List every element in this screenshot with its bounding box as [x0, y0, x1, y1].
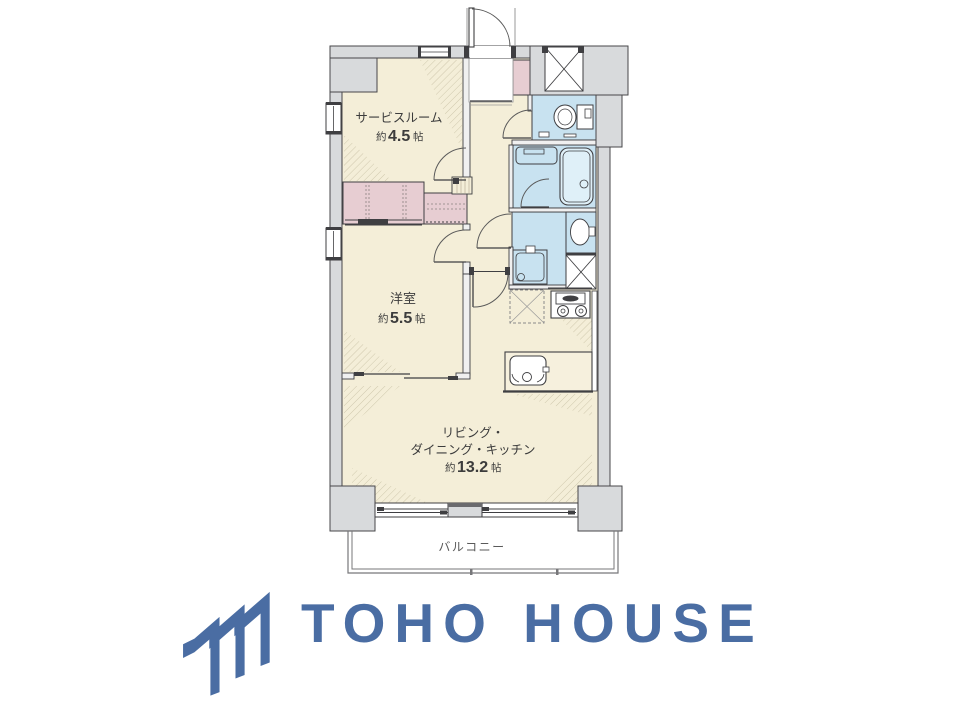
label-service-room: サービスルーム	[355, 111, 442, 125]
window-top	[418, 46, 451, 58]
window-left-upper	[326, 102, 341, 134]
toho-house-logo-icon	[183, 585, 280, 699]
entry-door-leaf	[469, 8, 474, 47]
elevator-shaft	[542, 46, 584, 91]
label-ldk-line1: リビング・	[442, 426, 505, 440]
column-top-left	[330, 58, 377, 92]
label-service-size-prefix: 約	[376, 130, 387, 143]
pipe-space	[566, 255, 596, 289]
wall-right-upper	[596, 95, 622, 147]
label-bedroom-size-prefix: 約	[378, 312, 389, 325]
label-ldk-size-prefix: 約	[445, 461, 456, 474]
column-bottom-right	[578, 486, 622, 531]
label-bedroom-size-value: 5.5	[390, 310, 412, 327]
label-bedroom: 洋室	[390, 291, 416, 306]
refrigerator-space	[510, 290, 544, 323]
gas-stove	[548, 288, 592, 318]
kitchen-wall-strip	[592, 291, 597, 391]
column-bottom-left	[330, 486, 375, 531]
kitchen-sink	[503, 352, 593, 392]
closet-small	[424, 193, 467, 224]
label-service-size-unit: 帖	[413, 130, 424, 143]
label-service-size-value: 4.5	[388, 128, 410, 145]
entry-door-arc	[472, 9, 510, 47]
floorplan-page: サービスルーム 約 4.5 帖 洋室 約 5.5 帖 リビング・ ダイニング・キ…	[0, 0, 960, 720]
label-bedroom-size-unit: 帖	[415, 312, 426, 325]
entry-door	[464, 8, 516, 58]
company-logo: TOHO HOUSE	[183, 584, 783, 704]
window-left-lower	[326, 227, 341, 260]
label-ldk-line2: ダイニング・キッチン	[410, 442, 535, 457]
shoe-cabinet	[513, 60, 530, 95]
balcony-sliding-window	[375, 503, 578, 517]
label-ldk-size-value: 13.2	[457, 459, 488, 476]
wall-right	[598, 147, 610, 505]
company-name: TOHO HOUSE	[301, 591, 764, 655]
bathtub-fixture	[560, 148, 593, 205]
closet-large	[343, 182, 424, 224]
label-balcony: バルコニー	[438, 540, 505, 554]
label-ldk-size-unit: 帖	[491, 461, 502, 474]
